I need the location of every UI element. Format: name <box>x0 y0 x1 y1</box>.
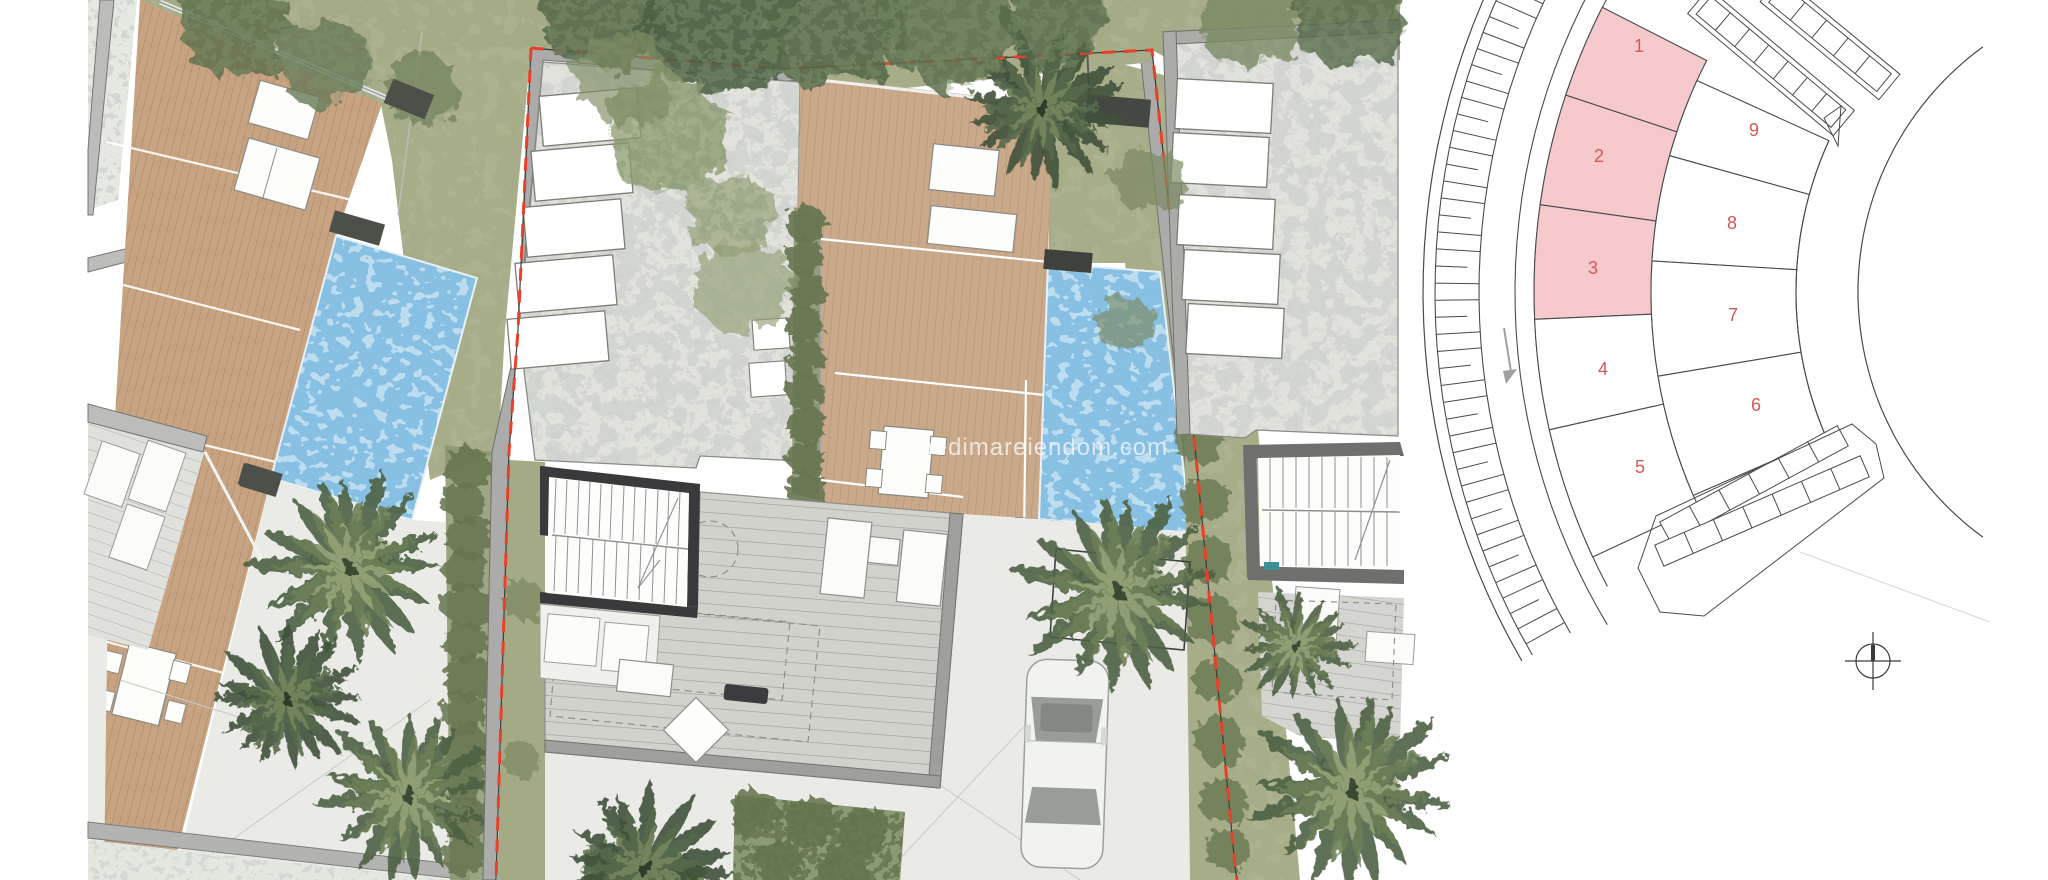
svg-text:5: 5 <box>1635 457 1645 477</box>
svg-text:w.medimareiendom.com: w.medimareiendom.com <box>887 434 1168 461</box>
svg-text:7: 7 <box>1728 305 1738 325</box>
svg-text:8: 8 <box>1727 213 1737 233</box>
svg-text:2: 2 <box>1594 146 1604 166</box>
svg-text:3: 3 <box>1588 258 1598 278</box>
svg-text:1: 1 <box>1634 36 1644 56</box>
svg-text:9: 9 <box>1749 120 1759 140</box>
svg-text:4: 4 <box>1598 359 1608 379</box>
svg-text:6: 6 <box>1751 395 1761 415</box>
